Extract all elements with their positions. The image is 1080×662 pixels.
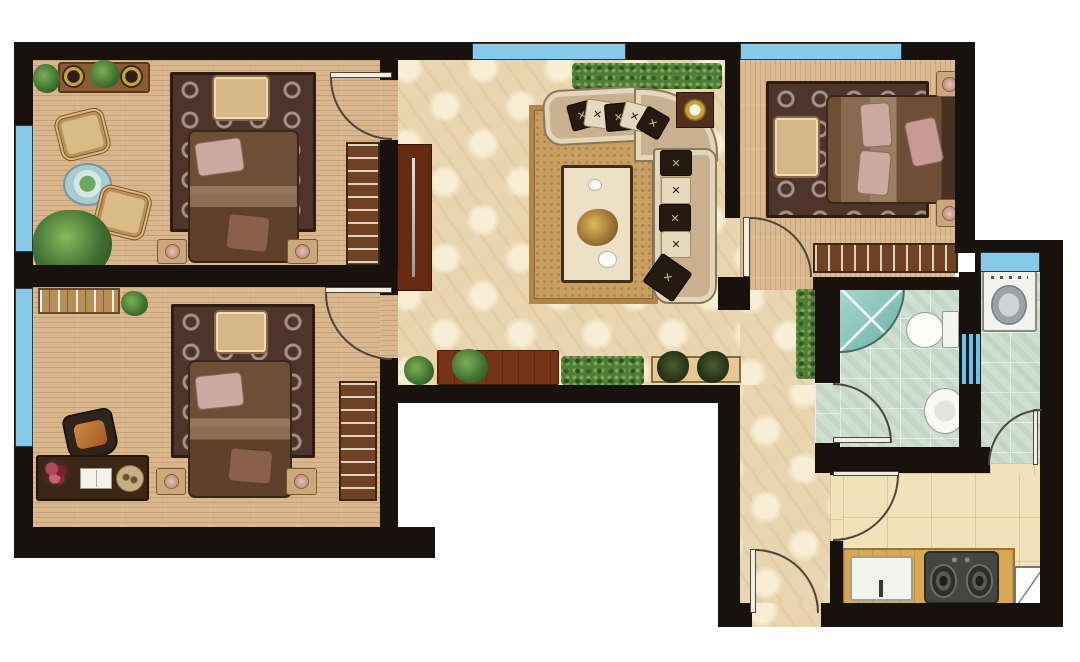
accent-bush [404, 356, 434, 385]
wall-bottom-right [821, 603, 1063, 627]
console-bowl-left [62, 65, 85, 88]
window-bedroom1-left [15, 125, 33, 252]
console-plant [90, 60, 120, 88]
wall-bedroom-divider [14, 265, 397, 287]
corner-plant [33, 64, 60, 93]
bedroom3-pillow-2 [856, 150, 892, 197]
bedroom3-pillow-1 [860, 102, 893, 148]
window-bathroom-interior [959, 334, 981, 384]
wall-cutout-right [718, 403, 740, 627]
wall-bottom-left [14, 527, 435, 558]
bedroom2-nightstand-right [286, 468, 317, 495]
bedroom2-nightstand-left [156, 468, 186, 495]
kitchen-sink [850, 556, 913, 601]
coffee-table-candles [588, 179, 602, 191]
stove [924, 551, 999, 604]
window-bedroom2-left [15, 288, 33, 447]
bookshelf [38, 288, 120, 314]
coffee-table-dish [598, 251, 617, 268]
bedroom2-bench [214, 310, 268, 354]
sofa-pillow-6 [660, 150, 692, 176]
desk-flowers [42, 459, 70, 487]
wall-bedroom3-right [955, 42, 975, 253]
wall-bedroom2-right-b [380, 358, 398, 527]
sofa-side-table [676, 92, 714, 128]
floor-plan [0, 0, 1080, 662]
bedroom2-plant [121, 291, 148, 316]
bedroom1-nightstand-right [287, 239, 318, 264]
window-hedge [572, 63, 722, 89]
bedroom1-pillow-1 [194, 137, 245, 177]
bedroom2-pillow-1 [194, 372, 244, 411]
window-bedroom3-top [740, 43, 902, 60]
sideboard-plant [452, 349, 488, 383]
wall-bedroom1-right-b [380, 140, 398, 267]
bedroom1-pillow-2 [225, 213, 271, 253]
bedroom3-wardrobe [813, 243, 958, 273]
wall-bottom-mid [718, 603, 752, 627]
wall-cutout-top [397, 385, 740, 403]
washing-machine [982, 270, 1037, 332]
desk-book [80, 468, 112, 489]
window-laundry-top [980, 252, 1040, 272]
wall-bedroom3-left [725, 60, 740, 218]
sofa-pillow-8 [659, 204, 691, 232]
toilet-tank [942, 311, 959, 348]
wall-right [1040, 252, 1063, 627]
wall-bedroom3-corner [718, 277, 750, 310]
tv-cabinet [397, 144, 432, 291]
corner-cabinet [1014, 566, 1042, 605]
console-bowl-right [120, 65, 143, 88]
sofa-pillow-7 [661, 177, 691, 204]
bedroom3-bench [773, 116, 820, 178]
wall-bathroom-left-a [815, 288, 840, 383]
mid-hedge [561, 356, 644, 385]
bedroom2-pillow-2 [228, 447, 274, 485]
bedroom1-wardrobe [346, 142, 380, 266]
bedroom1-bench [212, 75, 270, 121]
wall-laundry-left-a [959, 272, 981, 334]
door-bedroom3-leaf [743, 217, 750, 277]
bedroom2-wardrobe [339, 381, 377, 501]
bedroom1-nightstand-left [157, 239, 187, 264]
window-living-top [472, 43, 626, 60]
wall-kitchen-left-b [830, 541, 843, 603]
desk-tray [116, 465, 144, 492]
wall-laundry-top [975, 240, 1063, 252]
toilet-bowl [906, 312, 944, 348]
